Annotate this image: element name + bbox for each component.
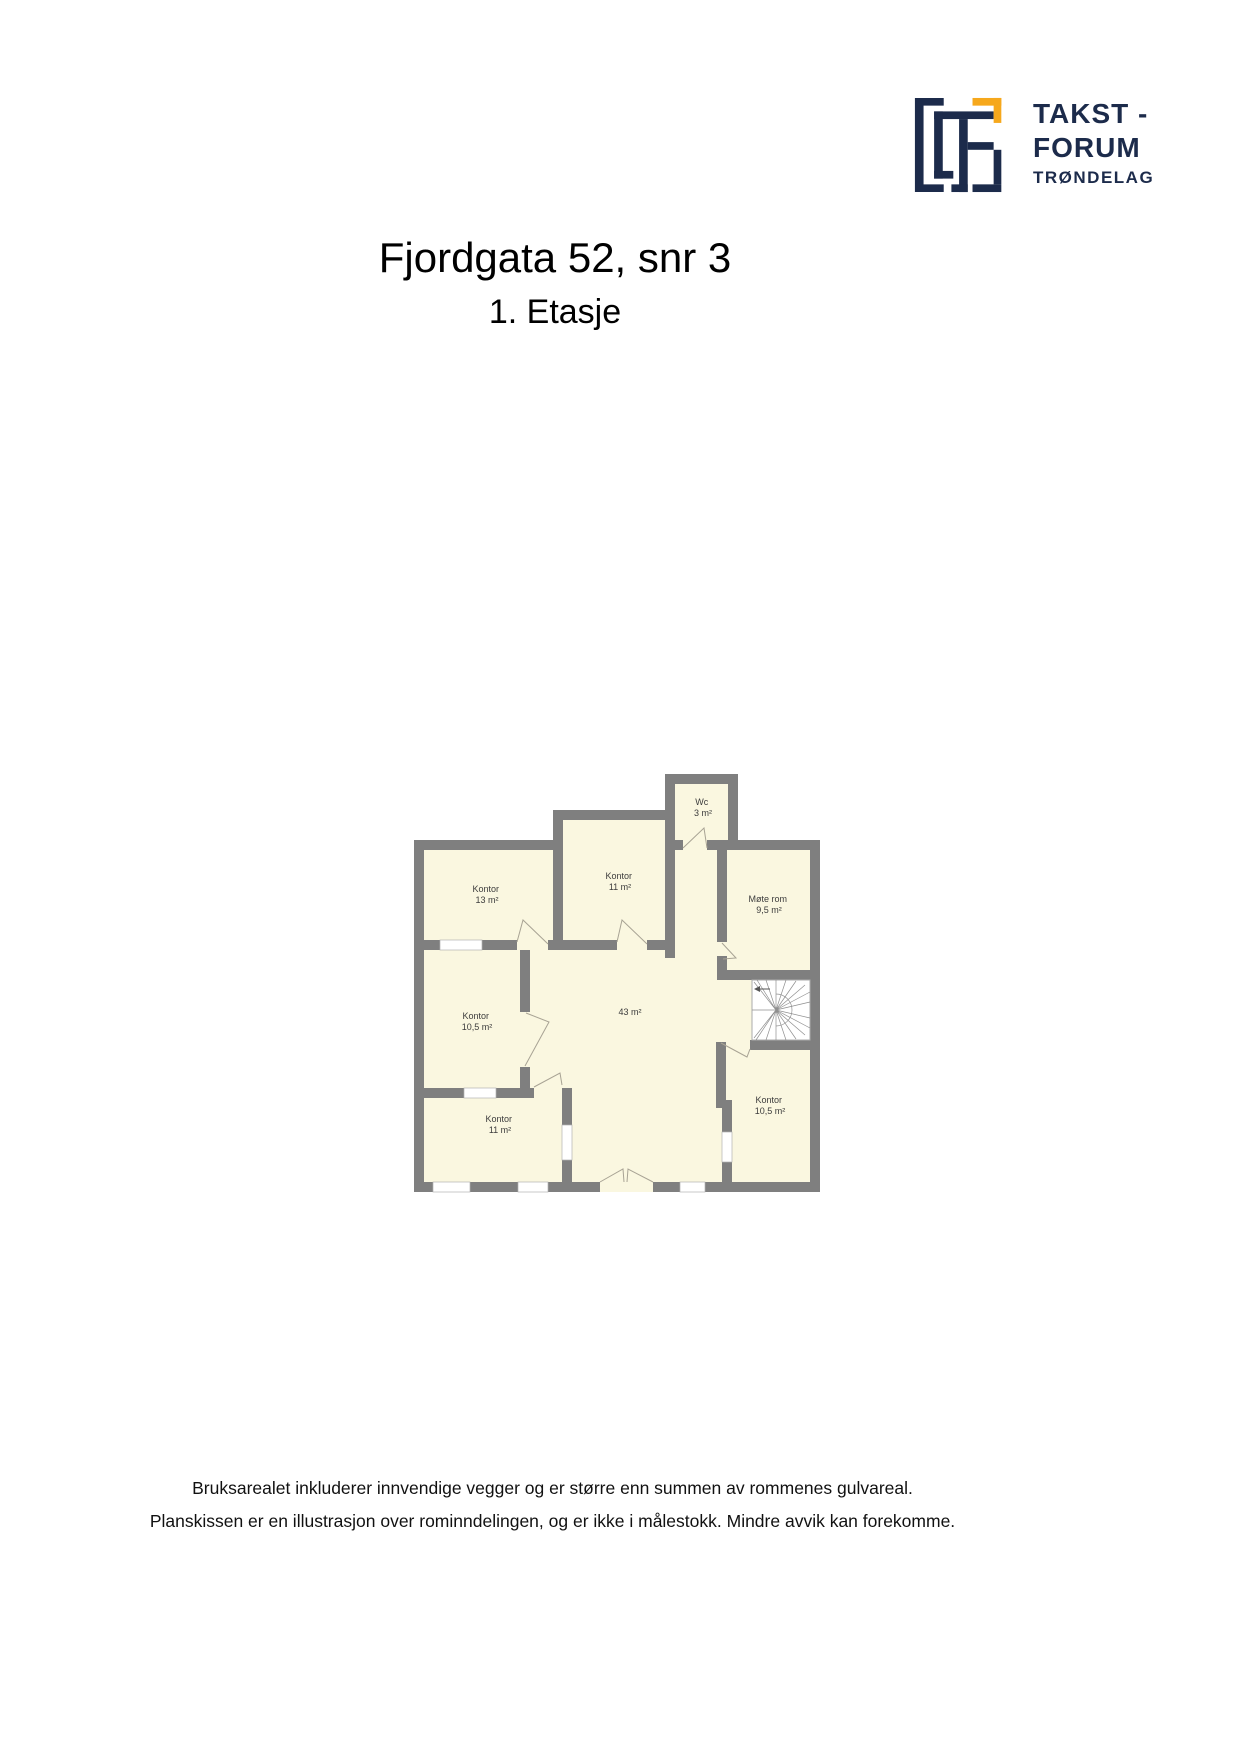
takstforum-logo-icon: [913, 97, 1009, 193]
logo-wordmark: TAKST - FORUM TRØNDELAG: [1033, 97, 1154, 189]
logo-yellow-corner: [973, 98, 1002, 123]
window: [433, 1182, 470, 1192]
window: [518, 1182, 548, 1192]
window: [722, 1132, 732, 1162]
disclaimer-line-2: Planskissen er en illustrasjon over romi…: [0, 1505, 1105, 1538]
floor-plan: Kontor 13 m² Kontor 11 m² Wc 3 m² Møte r…: [414, 770, 820, 1194]
window: [464, 1088, 496, 1098]
company-logo: TAKST - FORUM TRØNDELAG: [913, 97, 1154, 193]
staircase: [752, 980, 810, 1040]
room-label-kontor105-left: Kontor 10,5 m²: [462, 1011, 493, 1032]
disclaimer-footer: Bruksarealet inkluderer innvendige vegge…: [0, 1472, 1105, 1538]
room-label-wc: Wc 3 m²: [694, 797, 712, 818]
report-page: TAKST - FORUM TRØNDELAG Fjordgata 52, sn…: [0, 0, 1240, 1755]
window: [680, 1182, 705, 1192]
disclaimer-line-1: Bruksarealet inkluderer innvendige vegge…: [0, 1472, 1105, 1505]
logo-line-trondelag: TRØNDELAG: [1033, 167, 1154, 189]
page-subtitle: 1. Etasje: [0, 292, 1110, 332]
room-label-kontor11-top: Kontor 11 m²: [605, 871, 634, 892]
window: [440, 940, 482, 950]
page-title: Fjordgata 52, snr 3: [0, 234, 1110, 282]
logo-line-takst: TAKST -: [1033, 97, 1154, 131]
room-label-kontor13: Kontor 13 m²: [472, 884, 501, 905]
logo-line-forum: FORUM: [1033, 131, 1154, 165]
window: [562, 1125, 572, 1160]
room-label-kontor11-bottom: Kontor 11 m²: [485, 1114, 514, 1135]
heading-block: Fjordgata 52, snr 3 1. Etasje: [0, 234, 1110, 332]
room-label-open-area: 43 m²: [618, 1007, 641, 1017]
room-label-kontor105-right: Kontor 10,5 m²: [755, 1095, 786, 1116]
